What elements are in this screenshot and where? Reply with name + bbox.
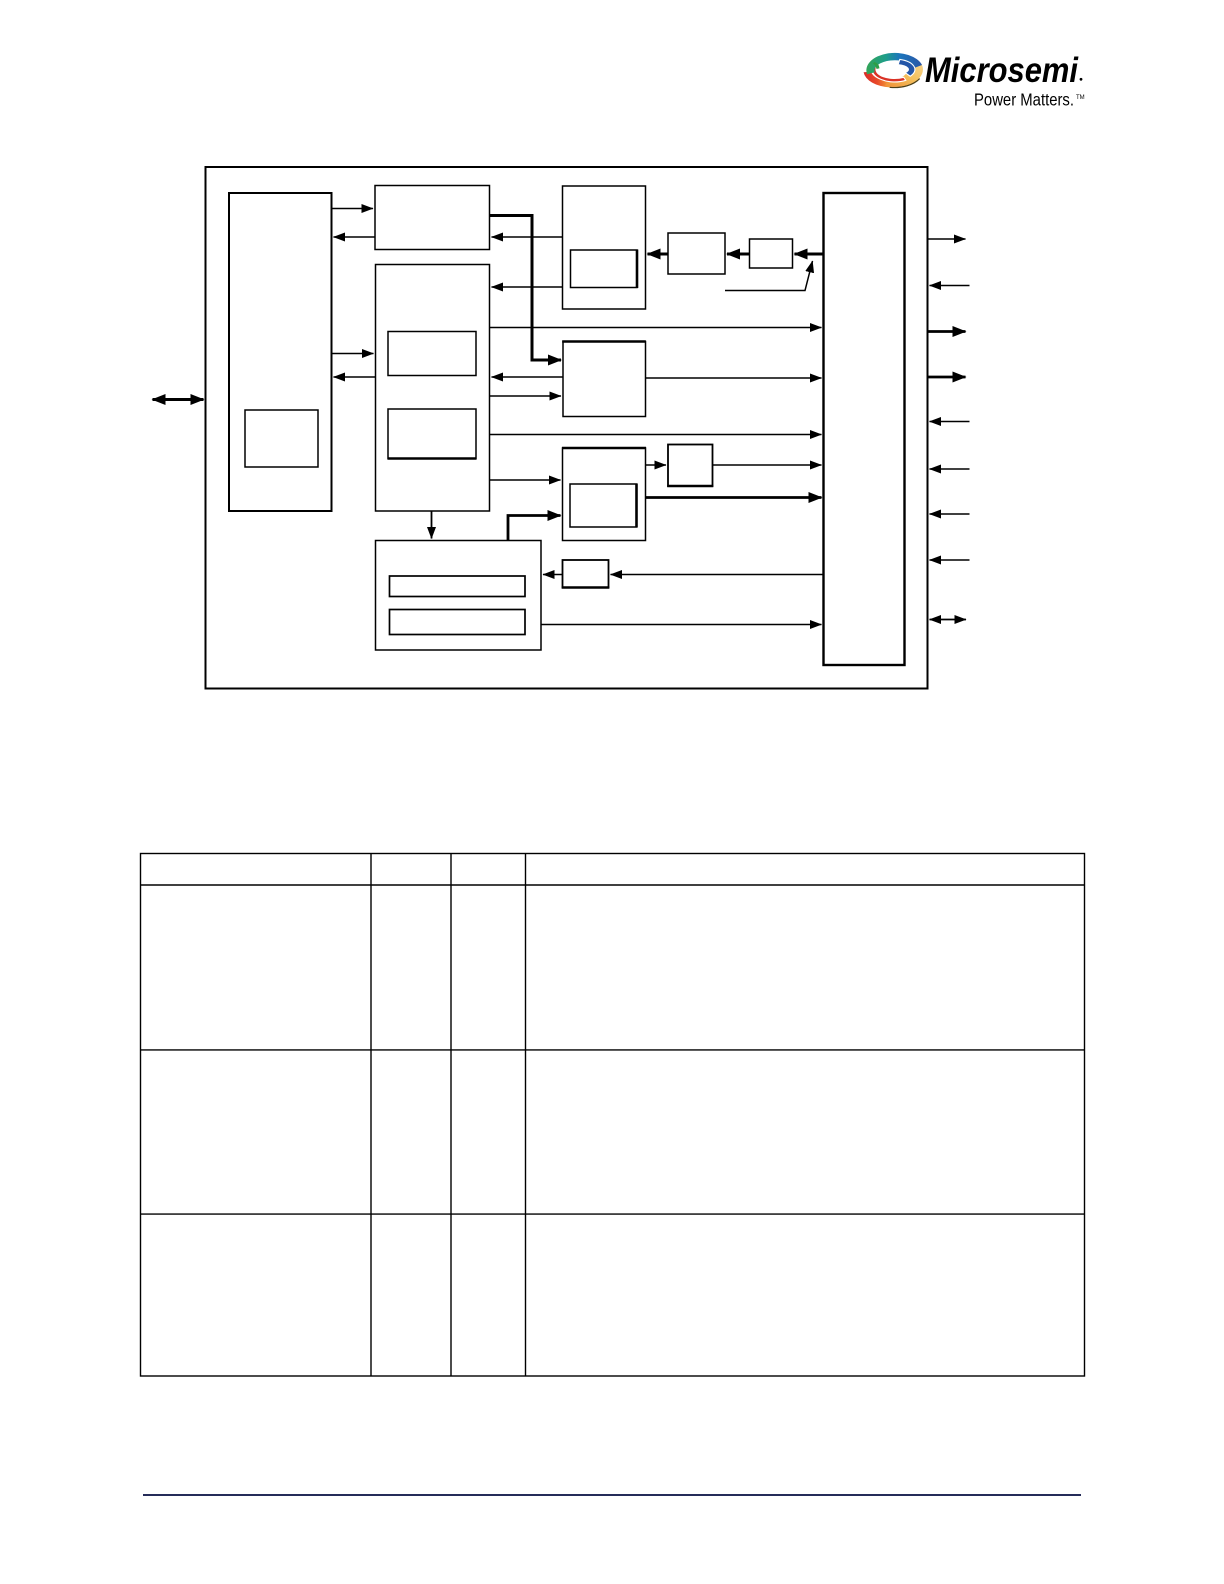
- svg-text:TM: TM: [1076, 95, 1085, 101]
- svg-text:Microsemi: Microsemi: [925, 50, 1079, 90]
- svg-text:Power Matters.: Power Matters.: [974, 90, 1074, 110]
